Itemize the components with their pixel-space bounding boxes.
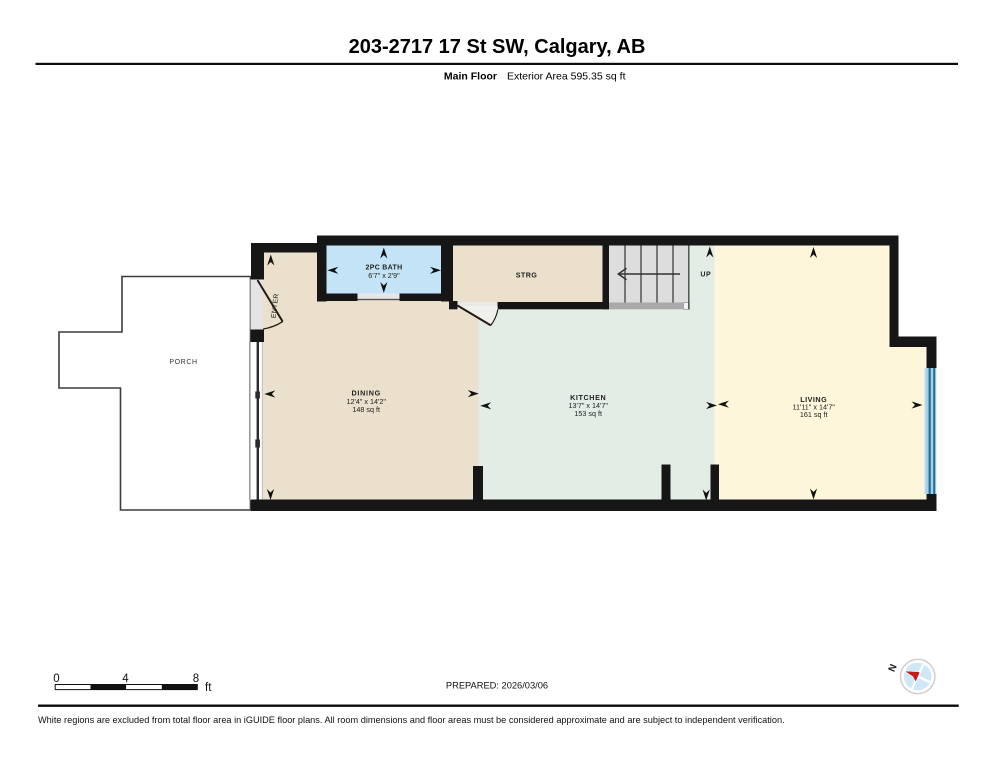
svg-text:203-2717 17 St SW, Calgary, AB: 203-2717 17 St SW, Calgary, AB (349, 36, 646, 58)
svg-text:0: 0 (53, 673, 59, 685)
svg-text:6'7" x 2'9": 6'7" x 2'9" (368, 271, 400, 280)
svg-text:4: 4 (122, 673, 129, 685)
svg-text:ft: ft (205, 682, 212, 694)
svg-text:Exterior Area 595.35 sq ft: Exterior Area 595.35 sq ft (507, 71, 626, 83)
svg-text:148 sq ft: 148 sq ft (352, 405, 380, 414)
svg-text:White regions are excluded fro: White regions are excluded from total fl… (38, 715, 785, 725)
svg-text:Main Floor: Main Floor (444, 71, 497, 83)
svg-text:153 sq ft: 153 sq ft (574, 409, 602, 418)
svg-text:PORCH: PORCH (169, 359, 197, 366)
svg-text:8: 8 (193, 673, 199, 685)
svg-text:161 sq ft: 161 sq ft (800, 410, 828, 419)
svg-text:PREPARED: 2026/03/06: PREPARED: 2026/03/06 (446, 680, 548, 690)
svg-text:UP: UP (700, 272, 711, 279)
svg-text:STRG: STRG (516, 271, 538, 280)
